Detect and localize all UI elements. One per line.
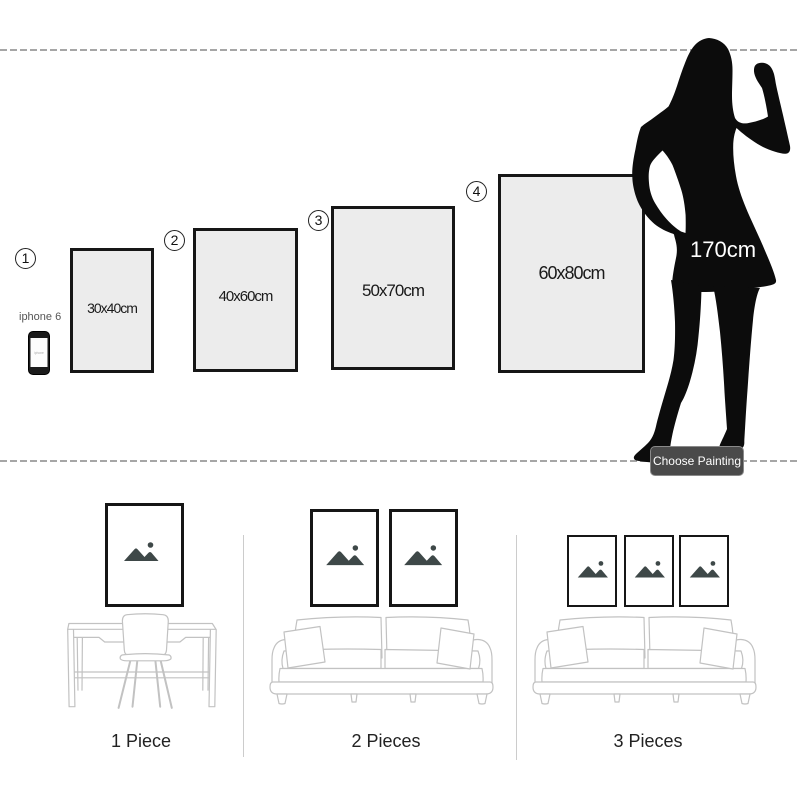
svg-text:170cm: 170cm	[690, 237, 756, 262]
svg-text:iphone: iphone	[34, 351, 44, 355]
